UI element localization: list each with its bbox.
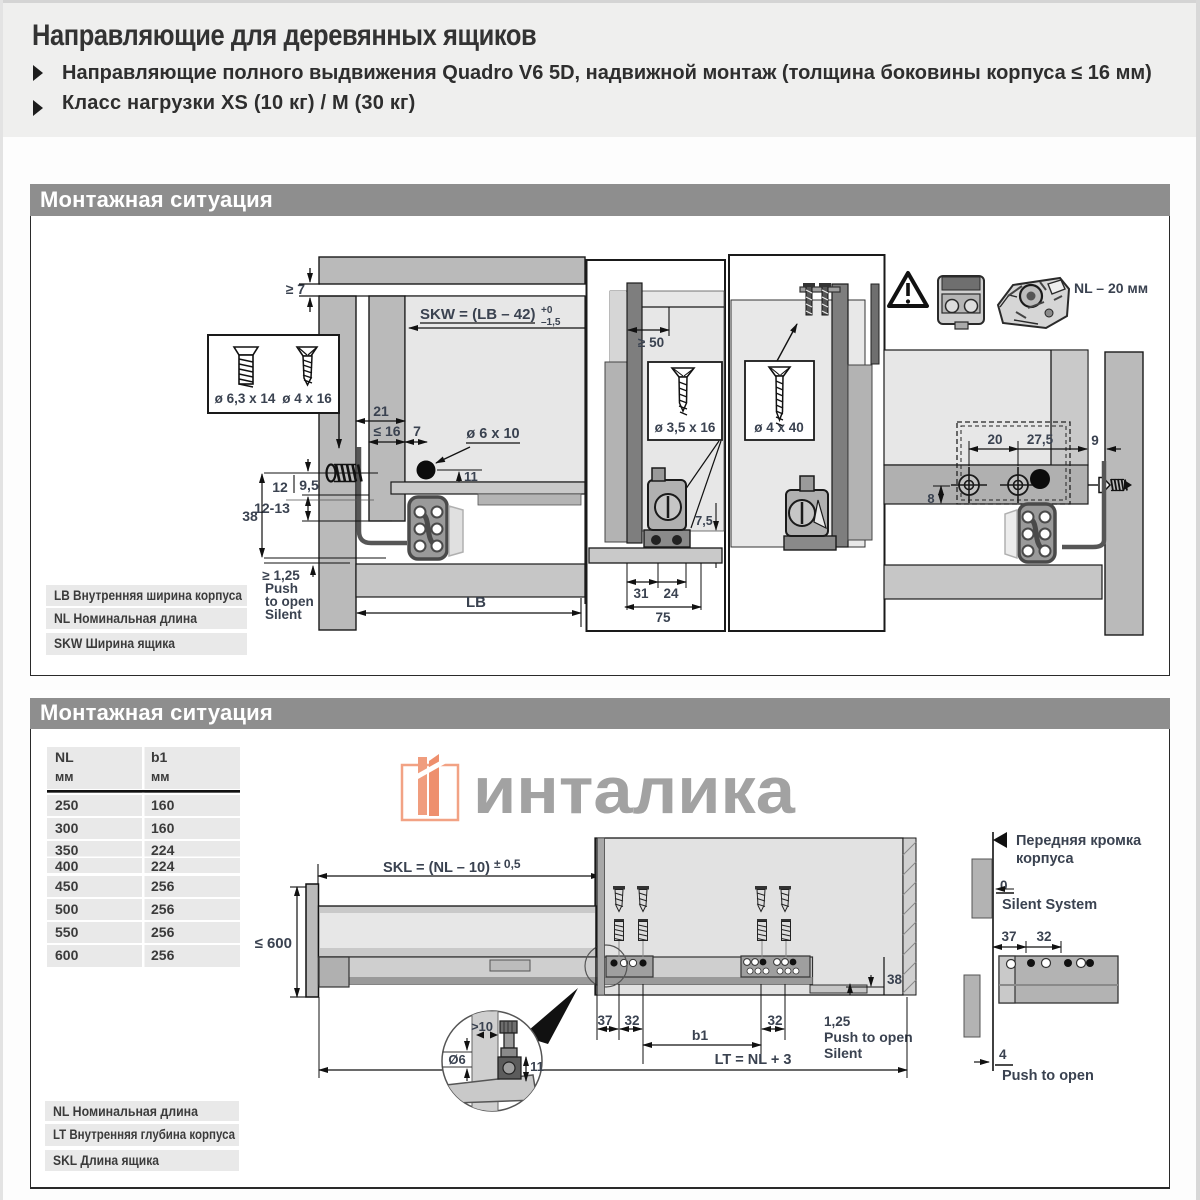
svg-text:0: 0 [1000, 878, 1008, 893]
svg-text:24: 24 [663, 586, 679, 601]
svg-text:32: 32 [1036, 929, 1051, 944]
svg-text:256: 256 [151, 924, 175, 940]
svg-text:NL Номинальная длина: NL Номинальная длина [54, 611, 197, 626]
svg-text:Ø6: Ø6 [448, 1052, 465, 1067]
svg-text:SKL Длина ящика: SKL Длина ящика [53, 1153, 159, 1168]
svg-text:9: 9 [1091, 433, 1099, 448]
svg-text:9,5: 9,5 [299, 477, 319, 493]
svg-text:± 0,5: ± 0,5 [494, 857, 521, 871]
svg-text:SKL = (NL – 10): SKL = (NL – 10) [383, 859, 490, 876]
svg-text:NL – 20 мм: NL – 20 мм [1074, 280, 1148, 296]
svg-text:Silent: Silent [265, 607, 302, 622]
svg-text:инталика: инталика [473, 753, 796, 827]
svg-text:b1: b1 [151, 749, 168, 765]
svg-text:LT = NL + 3: LT = NL + 3 [715, 1052, 792, 1068]
svg-text:LB: LB [466, 594, 486, 611]
svg-text:≤ 16: ≤ 16 [373, 423, 400, 439]
svg-text:21: 21 [373, 403, 389, 419]
svg-text:27,5: 27,5 [1027, 432, 1054, 447]
svg-text:256: 256 [151, 878, 175, 894]
svg-text:>10: >10 [471, 1019, 493, 1034]
svg-text:Silent: Silent [824, 1045, 862, 1061]
svg-text:7,5: 7,5 [695, 514, 712, 528]
svg-text:32: 32 [767, 1013, 782, 1028]
svg-text:37: 37 [1001, 929, 1016, 944]
svg-text:SKW = (LB – 42): SKW = (LB – 42) [420, 306, 535, 323]
svg-text:12-13: 12-13 [254, 500, 290, 516]
svg-text:256: 256 [151, 947, 175, 963]
svg-text:ø 4 x 16: ø 4 x 16 [282, 391, 332, 406]
svg-text:75: 75 [655, 610, 671, 625]
svg-text:≥ 50: ≥ 50 [638, 335, 664, 350]
svg-text:20: 20 [987, 432, 1002, 447]
svg-text:38: 38 [887, 972, 903, 987]
svg-text:ø 6 x 10: ø 6 x 10 [466, 426, 519, 442]
svg-text:Push to open: Push to open [824, 1029, 913, 1045]
svg-text:Push to open: Push to open [1002, 1068, 1094, 1084]
svg-text:350: 350 [55, 842, 79, 858]
svg-text:38: 38 [242, 508, 258, 524]
svg-text:32: 32 [624, 1013, 639, 1028]
svg-text:b1: b1 [692, 1027, 709, 1043]
svg-text:8: 8 [927, 491, 934, 506]
svg-text:–1,5: –1,5 [541, 317, 561, 328]
svg-text:NL: NL [55, 749, 74, 765]
svg-text:≤ 600: ≤ 600 [255, 935, 292, 952]
svg-text:LB Внутренняя ширина корпуса: LB Внутренняя ширина корпуса [54, 588, 242, 603]
svg-text:160: 160 [151, 797, 175, 813]
svg-text:ø 4 x 40: ø 4 x 40 [754, 420, 804, 435]
svg-text:NL Номинальная длина: NL Номинальная длина [53, 1104, 198, 1119]
svg-text:11: 11 [530, 1059, 544, 1074]
svg-text:корпуса: корпуса [1016, 851, 1074, 867]
svg-text:4: 4 [999, 1047, 1007, 1062]
svg-text:SKW Ширина ящика: SKW Ширина ящика [54, 636, 175, 651]
svg-text:+0: +0 [541, 305, 553, 316]
svg-text:250: 250 [55, 797, 79, 813]
svg-text:LT Внутренняя глубина корпуса: LT Внутренняя глубина корпуса [53, 1127, 235, 1142]
svg-text:мм: мм [55, 770, 74, 784]
svg-text:Silent System: Silent System [1002, 897, 1097, 913]
svg-text:12: 12 [272, 479, 288, 495]
svg-text:300: 300 [55, 820, 79, 836]
svg-text:31: 31 [633, 586, 649, 601]
svg-text:160: 160 [151, 820, 175, 836]
svg-text:450: 450 [55, 878, 79, 894]
svg-text:400: 400 [55, 858, 79, 874]
svg-text:Передняя кромка: Передняя кромка [1016, 833, 1142, 849]
svg-text:600: 600 [55, 947, 79, 963]
svg-text:224: 224 [151, 858, 175, 874]
svg-text:ø 3,5 x 16: ø 3,5 x 16 [655, 420, 716, 435]
svg-text:500: 500 [55, 901, 79, 917]
svg-text:7: 7 [413, 423, 421, 439]
svg-text:1,25: 1,25 [824, 1014, 851, 1029]
svg-text:550: 550 [55, 924, 79, 940]
svg-text:37: 37 [597, 1013, 612, 1028]
svg-text:224: 224 [151, 842, 175, 858]
svg-text:256: 256 [151, 901, 175, 917]
svg-text:ø 6,3 x 14: ø 6,3 x 14 [215, 391, 276, 406]
svg-text:мм: мм [151, 770, 170, 784]
